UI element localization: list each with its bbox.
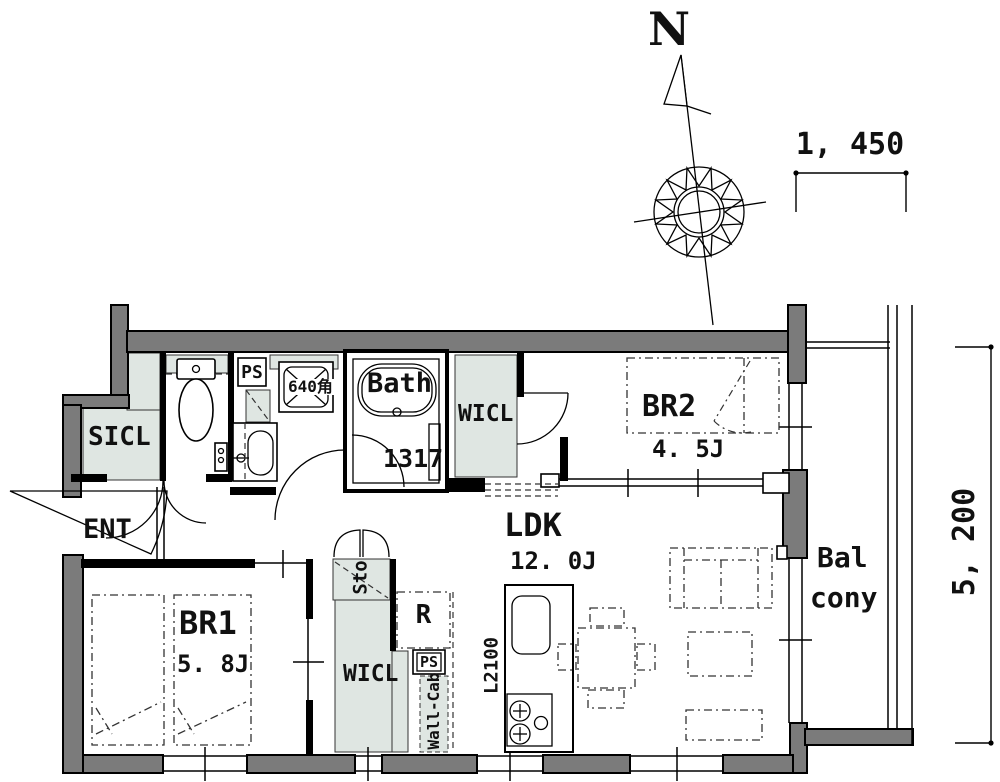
wall-top	[127, 331, 790, 352]
north-needle-icon	[664, 55, 687, 106]
wall-bottom-1	[83, 755, 163, 773]
br1-bed-1	[92, 595, 164, 745]
wall-west-lower	[63, 555, 83, 773]
room-label-bath: Bath	[367, 370, 432, 397]
label-ps-upper: PS	[238, 364, 266, 382]
label-counter-length: L2100	[483, 626, 502, 706]
label-ldk-size: 12. 0J	[510, 549, 597, 573]
coffee-table	[688, 632, 752, 676]
wall-bottom-3	[382, 755, 477, 773]
label-br1-size: 5. 8J	[177, 652, 249, 676]
wall-bottom-2	[247, 755, 355, 773]
sicl-area-upper	[127, 353, 160, 410]
room-label-br1: BR1	[179, 607, 237, 639]
north-label: N	[648, 6, 690, 52]
balcony-slab	[805, 729, 913, 745]
room-label-wicl-upper: WICL	[458, 403, 513, 426]
label-refrigerator: R	[397, 602, 450, 628]
toilet-door-arc	[164, 481, 206, 523]
floor-plan: N 1, 450 5, 200 SICL ENT PS 640角 Bath 13…	[0, 0, 1000, 782]
dining-chair-bottom	[588, 690, 624, 708]
room-label-balcony-1: Bal	[817, 544, 868, 572]
compass-rose-icon	[634, 55, 766, 325]
tv-board	[686, 710, 762, 740]
label-bath-size: 1317	[383, 446, 443, 471]
room-label-br2: BR2	[642, 392, 696, 422]
label-washer-size: 640角	[287, 379, 334, 395]
wall-bottom-5	[723, 755, 793, 773]
room-label-ldk: LDK	[504, 509, 562, 541]
wall-nw-stub	[111, 305, 128, 408]
room-label-wicl-lower: WICL	[343, 663, 398, 686]
dimension-top-label: 1, 450	[790, 130, 910, 160]
washroom-door-arc	[275, 450, 345, 520]
label-br2-size: 4. 5J	[652, 437, 724, 461]
dining-chair-right	[637, 644, 655, 670]
room-label-sicl: SICL	[88, 424, 151, 450]
kitchen-counter	[505, 585, 573, 752]
br2-door-arc	[714, 421, 751, 433]
wall-pillar-ne	[788, 305, 806, 383]
room-label-sto: Sto	[352, 553, 371, 603]
dimension-top	[793, 170, 908, 212]
toilet-icon	[177, 359, 227, 471]
wall-bottom-4	[543, 755, 630, 773]
room-label-balcony-2: cony	[810, 584, 877, 612]
balcony-railing	[888, 305, 912, 746]
wicl-upper-door-arc	[517, 393, 568, 444]
wall-west-upper	[63, 405, 81, 497]
label-wall-cabinet: Wall-Cab	[426, 668, 442, 754]
dimension-right-label: 5, 200	[950, 482, 980, 602]
room-label-ent: ENT	[83, 516, 132, 543]
vanity-sink-icon	[233, 423, 277, 481]
dining-table	[578, 628, 635, 688]
dining-chair-top	[590, 608, 624, 626]
